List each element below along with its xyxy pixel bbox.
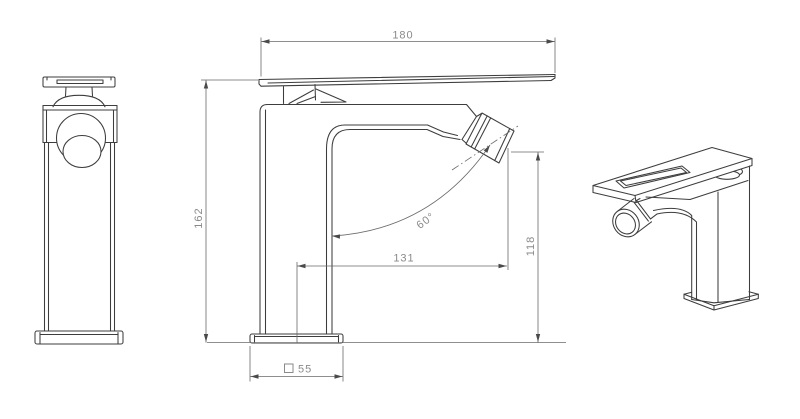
front-base: [250, 334, 343, 343]
side-handle-plate: [43, 77, 115, 87]
front-handle: [259, 75, 555, 87]
drawing-sheet: 180 162 131 118 60°: [0, 0, 800, 419]
dimension-60-label: 60°: [415, 210, 438, 231]
side-base: [35, 331, 123, 344]
front-spout-block: [462, 113, 514, 163]
dimension-131-label: 131: [393, 253, 414, 265]
dimension-131: 131: [297, 148, 508, 343]
dimension-118-label: 118: [525, 236, 537, 257]
dimension-180-label: 180: [392, 30, 413, 42]
dimension-162-label: 162: [193, 207, 205, 228]
perspective-spout: [607, 199, 657, 243]
side-handle-stem: [66, 87, 93, 96]
front-handle-stem: [284, 85, 347, 104]
technical-drawing-canvas: 180 162 131 118 60°: [0, 0, 800, 419]
side-column: [45, 143, 115, 332]
side-view: [35, 77, 123, 344]
dimension-118: 118: [511, 152, 544, 342]
perspective-view: [593, 148, 758, 311]
dimension-annotations: 180 162 131 118 60°: [193, 30, 566, 382]
angle-arc: [332, 145, 490, 236]
side-aerator-face: [63, 136, 101, 168]
dimension-180: 180: [261, 30, 555, 77]
front-body: [260, 105, 477, 335]
front-view: [250, 75, 555, 344]
dimension-162: 162: [193, 80, 258, 343]
dimension-55-label: 55: [298, 364, 312, 376]
dimension-55: 55: [250, 346, 343, 382]
square-section-symbol: [285, 364, 294, 373]
side-handle-slot: [57, 80, 103, 84]
perspective-base: [684, 292, 758, 310]
